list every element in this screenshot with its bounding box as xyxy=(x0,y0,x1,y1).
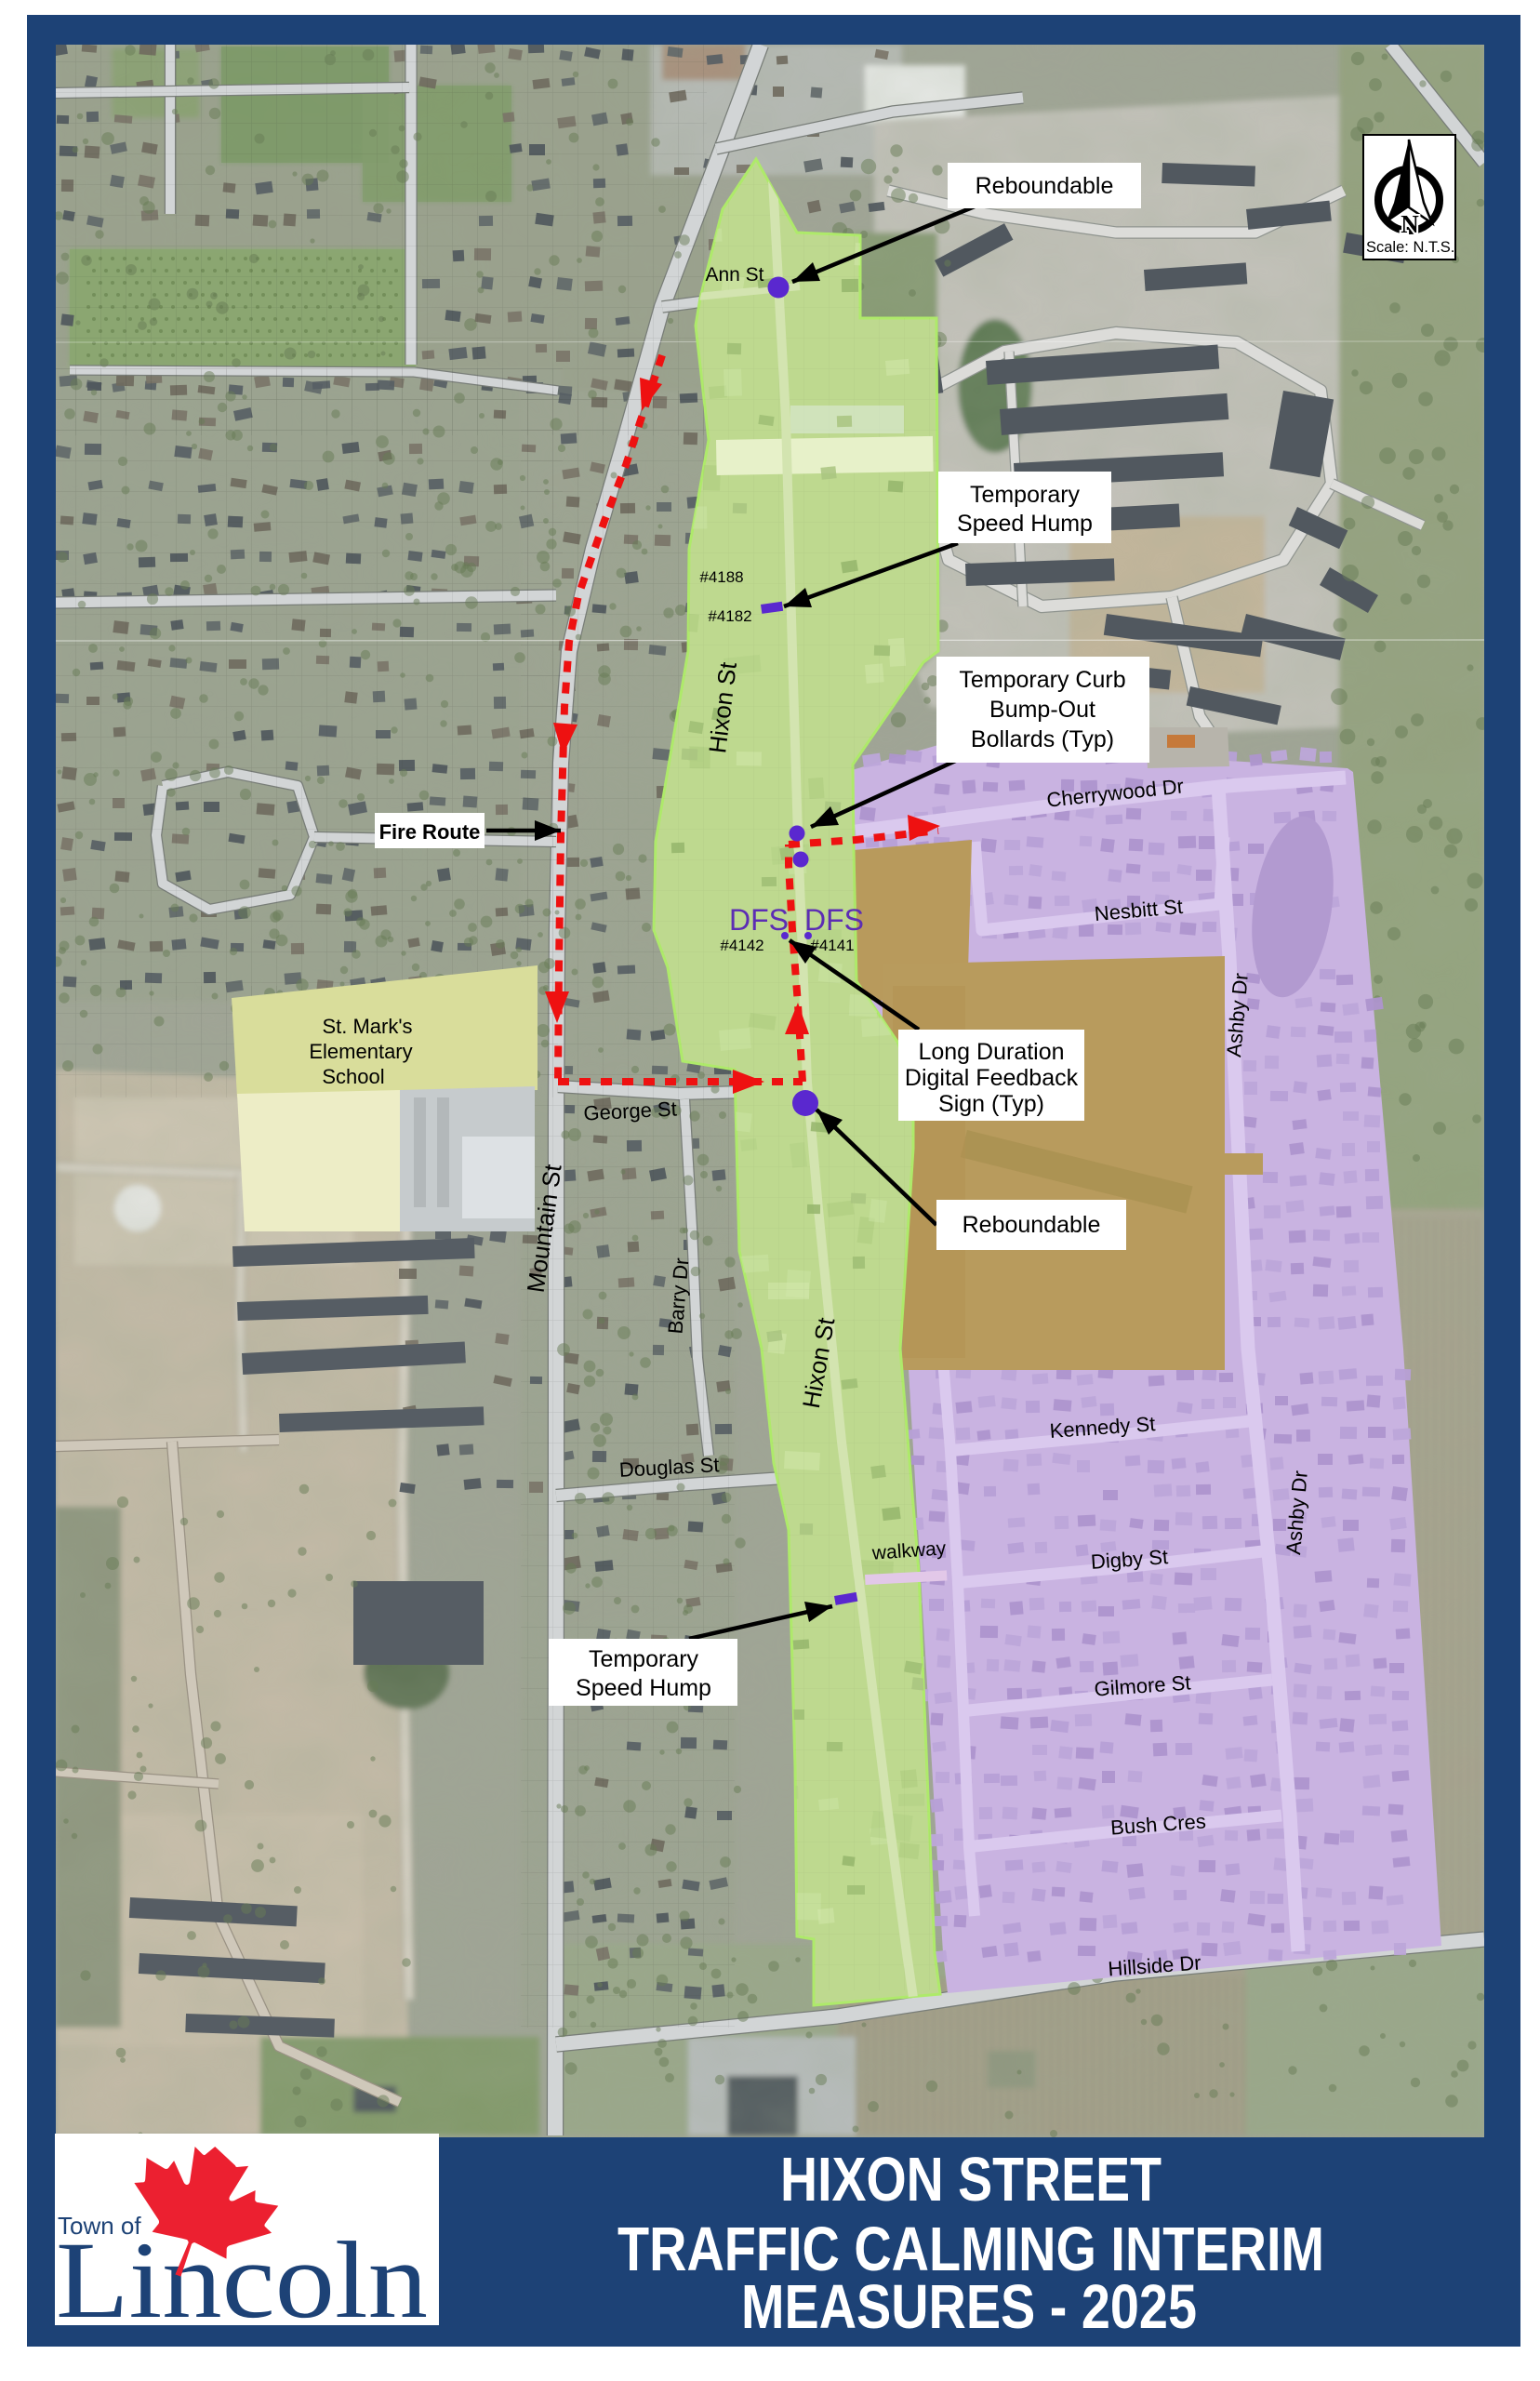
svg-text:Scale: N.T.S.: Scale: N.T.S. xyxy=(1366,239,1454,256)
svg-text:Temporary: Temporary xyxy=(970,482,1081,508)
svg-text:Elementary: Elementary xyxy=(309,1040,412,1063)
svg-text:School: School xyxy=(322,1065,384,1088)
svg-text:DFS: DFS xyxy=(804,903,864,937)
svg-text:Bump-Out: Bump-Out xyxy=(989,697,1095,723)
svg-text:Digital Feedback: Digital Feedback xyxy=(905,1065,1079,1091)
svg-text:Long Duration: Long Duration xyxy=(918,1039,1064,1065)
svg-text:Temporary: Temporary xyxy=(589,1646,699,1672)
svg-text:Fire Route: Fire Route xyxy=(379,820,481,844)
svg-text:MEASURES - 2025: MEASURES - 2025 xyxy=(741,2272,1197,2342)
svg-text:#4188: #4188 xyxy=(699,568,743,586)
svg-text:Reboundable: Reboundable xyxy=(976,173,1114,199)
svg-text:HIXON STREET: HIXON STREET xyxy=(780,2145,1162,2215)
svg-text:St. Mark's: St. Mark's xyxy=(322,1015,412,1038)
svg-text:DFS: DFS xyxy=(729,903,789,937)
svg-text:Speed Hump: Speed Hump xyxy=(576,1675,711,1701)
svg-text:#4182: #4182 xyxy=(708,607,751,625)
svg-text:Sign (Typ): Sign (Typ) xyxy=(938,1091,1044,1117)
svg-text:George St: George St xyxy=(583,1097,677,1124)
svg-text:#4141: #4141 xyxy=(810,937,854,954)
svg-text:Ann St: Ann St xyxy=(705,264,763,286)
svg-text:Speed Hump: Speed Hump xyxy=(957,511,1093,537)
svg-text:Temporary Curb: Temporary Curb xyxy=(959,667,1125,693)
svg-text:#4142: #4142 xyxy=(720,937,763,954)
svg-text:N: N xyxy=(1401,210,1419,238)
svg-text:Reboundable: Reboundable xyxy=(962,1212,1101,1238)
svg-text:Bollards (Typ): Bollards (Typ) xyxy=(971,726,1114,752)
